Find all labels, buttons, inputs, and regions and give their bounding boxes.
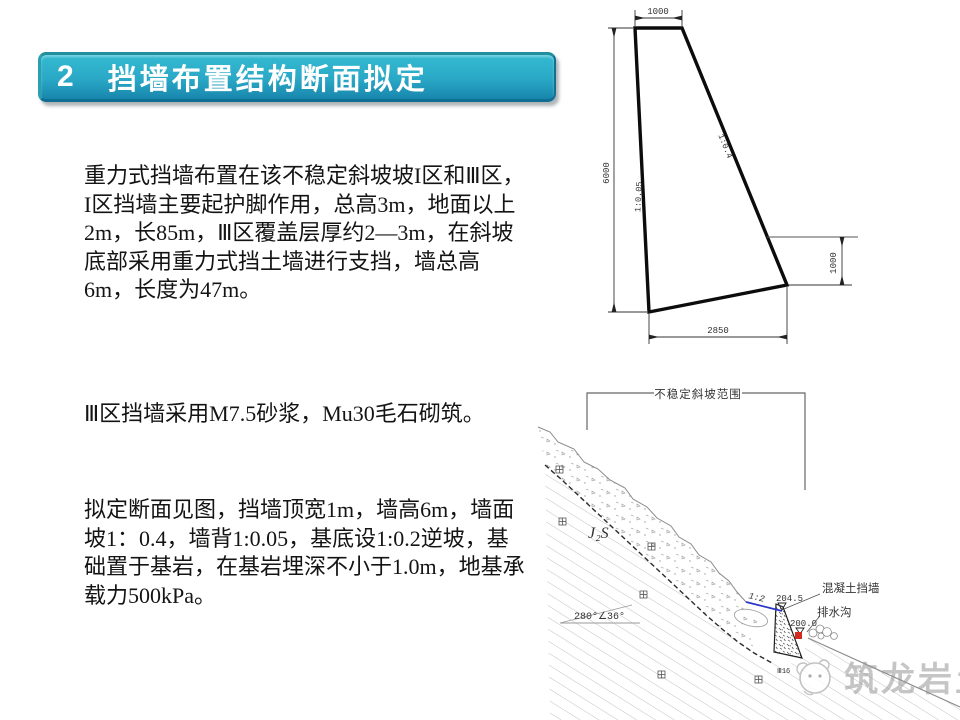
- paragraph-materials: Ⅲ区挡墙采用M7.5砂浆，Mu30毛石砌筑。: [84, 400, 528, 429]
- slide-page: { "header": { "number": "2", "title": "挡…: [0, 0, 960, 720]
- attitude-label: 280°∠36°: [574, 611, 625, 623]
- back-slope-label: 1:0.05: [633, 181, 645, 212]
- wall-outline: [635, 28, 787, 312]
- wall-label: 混凝土挡墙: [822, 581, 880, 595]
- unstable-range-label: 不稳定斜坡范围: [654, 387, 742, 401]
- dim-embed-depth: 1000: [829, 252, 839, 274]
- dim-embed-group: [789, 237, 852, 285]
- zhulong-logo-icon: [790, 651, 840, 701]
- header-banner: 2 挡墙布置结构断面拟定: [38, 52, 556, 102]
- strata-label: J₂S: [588, 525, 609, 542]
- banner-number: 2: [57, 60, 74, 94]
- dim-base-width: 2850: [707, 326, 729, 336]
- banner-title: 挡墙布置结构断面拟定: [108, 56, 428, 98]
- watermark-text: 筑龙岩土: [844, 652, 960, 701]
- dim-top-width: 1000: [647, 7, 669, 17]
- paragraph-section-parameters: 拟定断面见图，挡墙顶宽1m，墙高6m，墙面坡1：0.4，墙背1:0.05，基底设…: [84, 496, 528, 610]
- ditch-marker: [795, 632, 802, 639]
- ditch-label: 排水沟: [817, 605, 852, 619]
- dim-wall-height: 6000: [602, 162, 612, 184]
- watermark: 筑龙岩土: [790, 650, 960, 702]
- wall-section-diagram: 1000 6000 2850 1000 1:0.05 1:0.4: [580, 0, 960, 355]
- unstable-range-bracket: [587, 393, 805, 490]
- paragraph-wall-layout: 重力式挡墙布置在该不稳定斜坡坡I区和Ⅲ区，I区挡墙主要起护脚作用，总高3m，地面…: [84, 162, 528, 305]
- base-note-label: Ⅲ16: [777, 668, 790, 676]
